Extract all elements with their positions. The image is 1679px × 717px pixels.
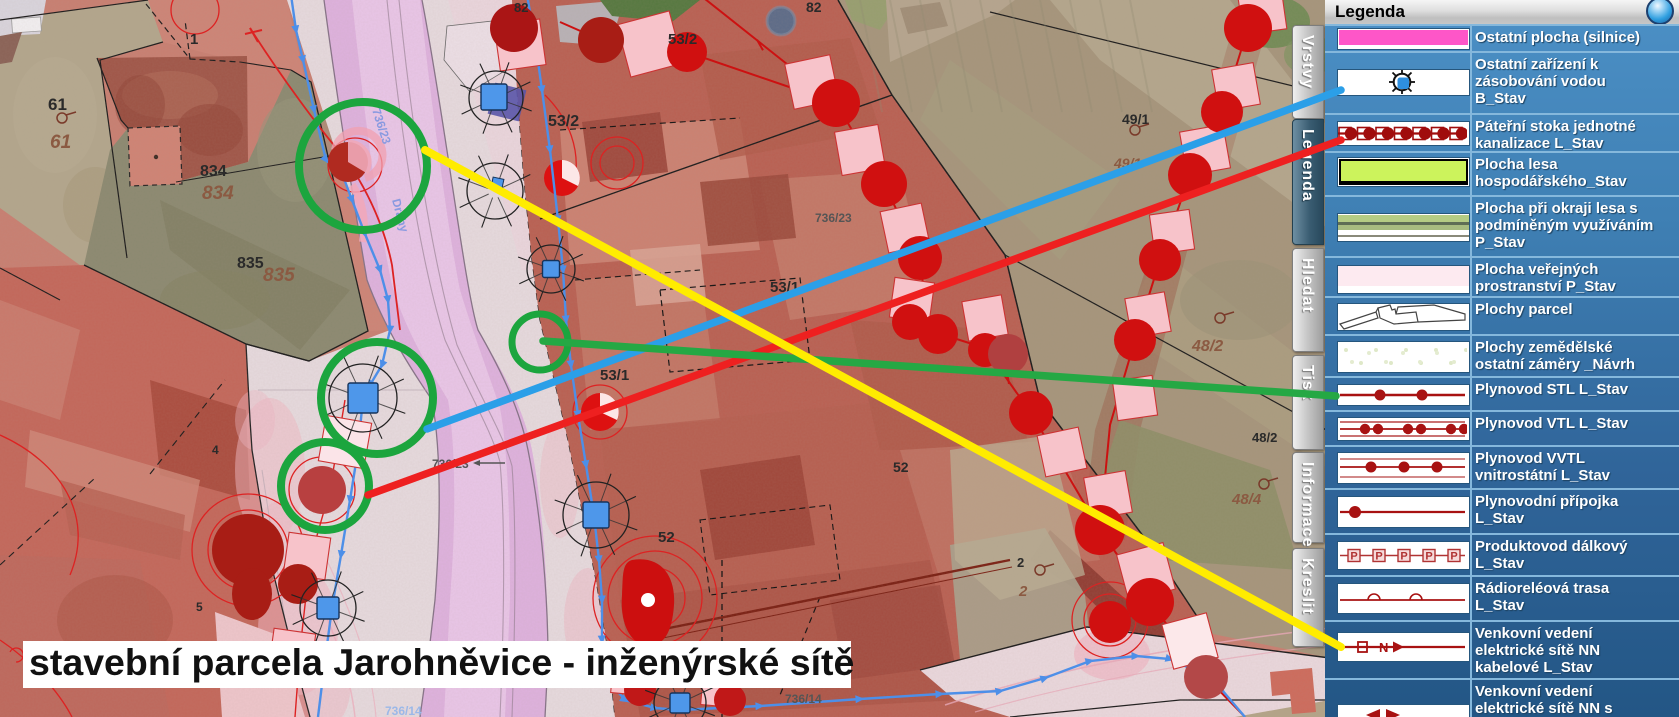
svg-text:49/1: 49/1	[1113, 155, 1141, 171]
svg-text:P: P	[1375, 551, 1382, 563]
svg-text:stavební parcela Jarohněvice -: stavební parcela Jarohněvice - inženýrsk…	[29, 641, 854, 683]
svg-text:P: P	[1450, 551, 1457, 563]
svg-text:53/1: 53/1	[600, 367, 629, 384]
svg-text:2: 2	[1018, 583, 1028, 600]
svg-text:834: 834	[202, 183, 234, 204]
svg-text:48/2: 48/2	[1252, 430, 1277, 445]
svg-text:53/1: 53/1	[770, 279, 799, 296]
svg-text:48/2: 48/2	[1191, 338, 1223, 355]
svg-text:48/4: 48/4	[1231, 491, 1262, 508]
svg-text:1: 1	[190, 31, 198, 48]
svg-text:P: P	[1425, 551, 1432, 563]
svg-text:52: 52	[893, 459, 909, 475]
svg-text:834: 834	[200, 163, 227, 180]
svg-text:61: 61	[48, 95, 67, 114]
svg-text:N: N	[1379, 640, 1388, 655]
svg-text:736/14: 736/14	[785, 692, 822, 706]
svg-text:53/2: 53/2	[668, 31, 697, 48]
svg-text:736/14: 736/14	[385, 704, 422, 717]
svg-text:P: P	[1400, 551, 1407, 563]
svg-text:835: 835	[237, 255, 264, 272]
svg-text:4: 4	[212, 443, 219, 457]
svg-text:835: 835	[263, 265, 295, 286]
svg-text:5: 5	[196, 600, 203, 614]
svg-text:53/2: 53/2	[548, 113, 579, 130]
svg-text:2: 2	[1017, 555, 1024, 570]
svg-text:82: 82	[514, 0, 528, 15]
svg-text:736/23: 736/23	[815, 211, 852, 225]
svg-text:61: 61	[50, 132, 71, 153]
svg-text:52: 52	[658, 529, 675, 546]
svg-text:82: 82	[806, 0, 822, 15]
svg-text:P: P	[1350, 551, 1357, 563]
svg-text:736/23: 736/23	[432, 457, 469, 471]
